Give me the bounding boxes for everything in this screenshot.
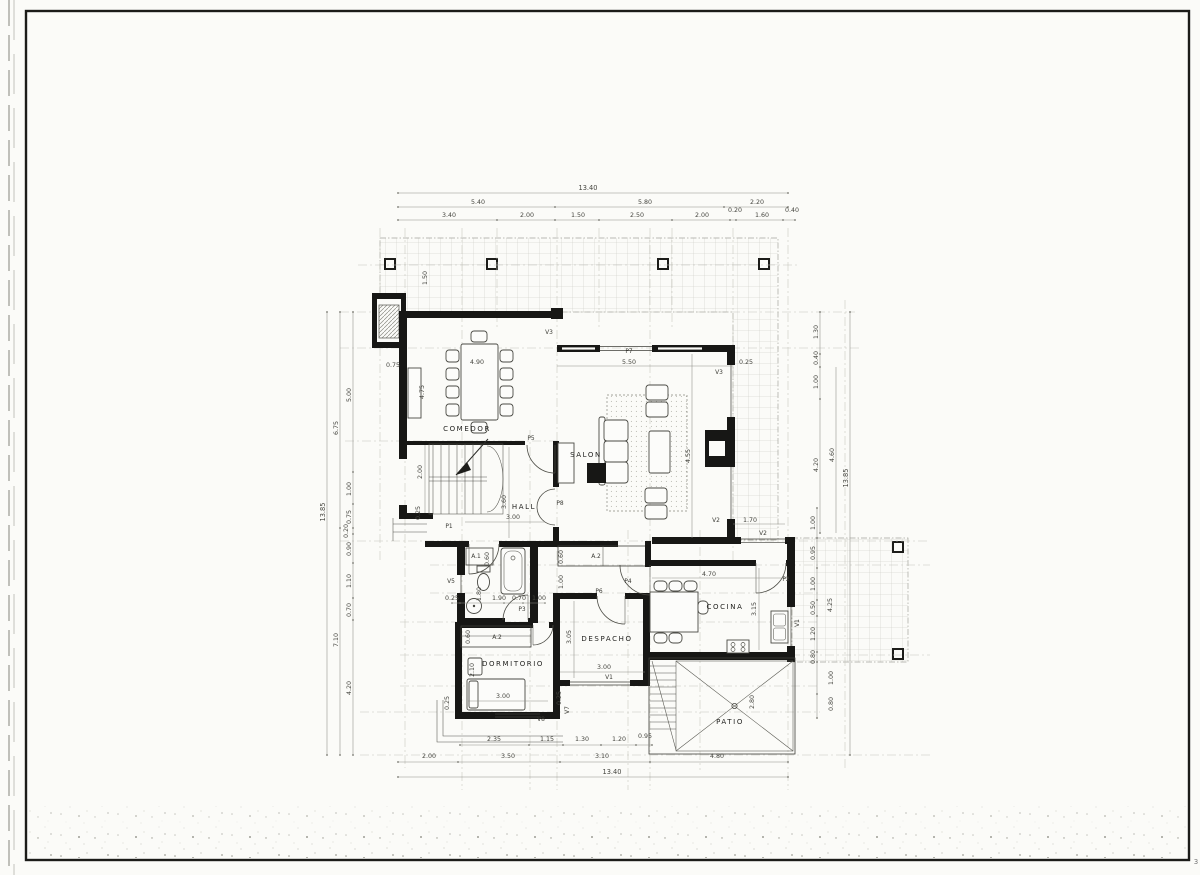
dim: 1.00 (810, 516, 817, 530)
dim: 2.50 (630, 212, 644, 219)
dim: 0.20 (343, 524, 350, 538)
window-label-v1: V1 (605, 675, 613, 681)
dim: 1.10 (346, 574, 353, 588)
dim: 0.25 (445, 595, 459, 602)
dim: 3.05 (566, 630, 573, 644)
dim: 0.25 (739, 359, 753, 366)
dim: 1.20 (612, 736, 626, 743)
dim: 0.95 (810, 546, 817, 560)
dim-left-total: 13.85 (319, 503, 327, 522)
room-label-comedor: COMEDOR (443, 425, 491, 433)
armchair (646, 385, 668, 400)
dim: 2.00 (422, 753, 436, 760)
dim: 0.60 (484, 552, 491, 566)
dim: 0.80 (810, 650, 817, 664)
dim: 3.40 (442, 212, 456, 219)
porch-column (759, 259, 769, 269)
dim: 3.15 (751, 602, 758, 616)
dim: 1.80 (476, 587, 483, 601)
dim: 1.20 (810, 627, 817, 641)
dim: 0.80 (828, 697, 835, 711)
window-label-v7: V7 (565, 706, 571, 714)
fireplace (587, 463, 606, 483)
room-label-despacho: DESPACHO (581, 635, 632, 643)
closet-label-a1: A.1 (471, 554, 481, 560)
dim: 1.00 (558, 575, 565, 589)
coffee-table (649, 431, 670, 473)
dim-bottom-total: 13.40 (603, 768, 622, 776)
armchair (646, 402, 668, 417)
dim: 1.50 (422, 271, 429, 285)
dim: 4.60 (829, 448, 836, 462)
closet-label-a2: A.2 (492, 635, 502, 641)
porch-column (385, 259, 395, 269)
dim: 0.75 (386, 362, 400, 369)
dim: 4.75 (419, 385, 426, 399)
tv-cabinet (558, 443, 574, 483)
dim: 3.60 (501, 495, 508, 509)
window-label-v5: V5 (447, 579, 455, 585)
dim-top-total: 13.40 (579, 184, 598, 192)
door-label-p6: P6 (595, 589, 603, 595)
dim: 3.00 (506, 514, 520, 521)
dim: 2.00 (695, 212, 709, 219)
window-label-v2: V2 (712, 518, 720, 524)
dim: 1.70 (743, 517, 757, 524)
corner-mark: 3 (1194, 858, 1198, 866)
dim: 0.60 (558, 550, 565, 564)
dim: 0.25 (556, 691, 563, 705)
dim: 0.50 (810, 601, 817, 615)
dim: 6.75 (333, 421, 340, 435)
dim: 3.10 (595, 753, 609, 760)
room-label-hall: HALL (512, 503, 536, 511)
dim: 5.80 (638, 199, 652, 206)
dim: 1.50 (571, 212, 585, 219)
dim: 4.90 (470, 359, 484, 366)
closet-label-a2: A.2 (591, 554, 601, 560)
dim: 7.10 (333, 633, 340, 647)
stove (727, 640, 749, 653)
door-label-p4: P4 (624, 579, 632, 585)
terrace-column (893, 649, 903, 659)
dim: 2.80 (749, 695, 756, 709)
dim: 1.00 (810, 577, 817, 591)
dim: 1.30 (575, 736, 589, 743)
dim: 0.90 (346, 542, 353, 556)
dim: 0.25 (415, 506, 422, 520)
door-label-p2: P2 (782, 577, 790, 583)
dim-right-total: 13.85 (842, 469, 850, 488)
armchair (645, 488, 667, 503)
dim: 4.20 (813, 458, 820, 472)
dim: 0.70 (512, 595, 526, 602)
dim: 0.40 (785, 207, 799, 214)
dim: 1.90 (492, 595, 506, 602)
window-label-v3: V3 (715, 370, 723, 376)
window-label-v2: V2 (759, 531, 767, 537)
dim: 1.00 (346, 482, 353, 496)
dim: 1.00 (813, 375, 820, 389)
dim: 1.60 (755, 212, 769, 219)
dim: 0.75 (346, 510, 353, 524)
terrace-column (893, 542, 903, 552)
dim: 4.55 (685, 449, 692, 463)
dim: 0.60 (465, 630, 472, 644)
dim: 2.00 (417, 465, 424, 479)
dim: 2.35 (487, 736, 501, 743)
dim: 4.70 (702, 571, 716, 578)
room-label-cocina: COCINA (707, 603, 744, 611)
window-label-v1: V1 (795, 619, 801, 627)
door-label-p8: P8 (556, 501, 564, 507)
dim: 4.25 (827, 598, 834, 612)
room-label-dormitorio: DORMITORIO (482, 660, 544, 668)
dim: 1.30 (813, 325, 820, 339)
dim: 0.20 (728, 207, 742, 214)
door-label-p1: P1 (445, 524, 453, 530)
dim: 5.40 (471, 199, 485, 206)
dim: 1.00 (532, 595, 546, 602)
dim: 2.00 (520, 212, 534, 219)
porch-column (487, 259, 497, 269)
dim: 5.00 (346, 388, 353, 402)
room-label-salon: SALON (570, 451, 602, 459)
dim: 0.95 (638, 733, 652, 740)
dim: 1.15 (540, 736, 554, 743)
dim: 0.25 (444, 696, 451, 710)
dim: 3.00 (496, 693, 510, 700)
window-label-v8: V8 (537, 717, 545, 723)
room-label-patio: PATIO (716, 718, 744, 726)
door-label-p3: P3 (518, 607, 526, 613)
dim: 0.40 (813, 351, 820, 365)
window-label-v3: V3 (545, 330, 553, 336)
door-label-p5: P5 (527, 436, 535, 442)
door-label-p7: P7 (625, 349, 633, 355)
dim: 3.50 (501, 753, 515, 760)
porch-column (658, 259, 668, 269)
dim: 5.50 (622, 359, 636, 366)
dim: 4.80 (710, 753, 724, 760)
kitchen-table (650, 592, 698, 632)
dim: 1.00 (828, 671, 835, 685)
floor-plan-sheet: 3 (0, 0, 1200, 875)
dim: 3.00 (597, 664, 611, 671)
dim: 2.20 (750, 199, 764, 206)
dim: 2.10 (469, 663, 476, 677)
dim: 0.70 (346, 603, 353, 617)
pillow (469, 681, 478, 708)
armchair (645, 505, 667, 519)
dim: 4.20 (346, 681, 353, 695)
